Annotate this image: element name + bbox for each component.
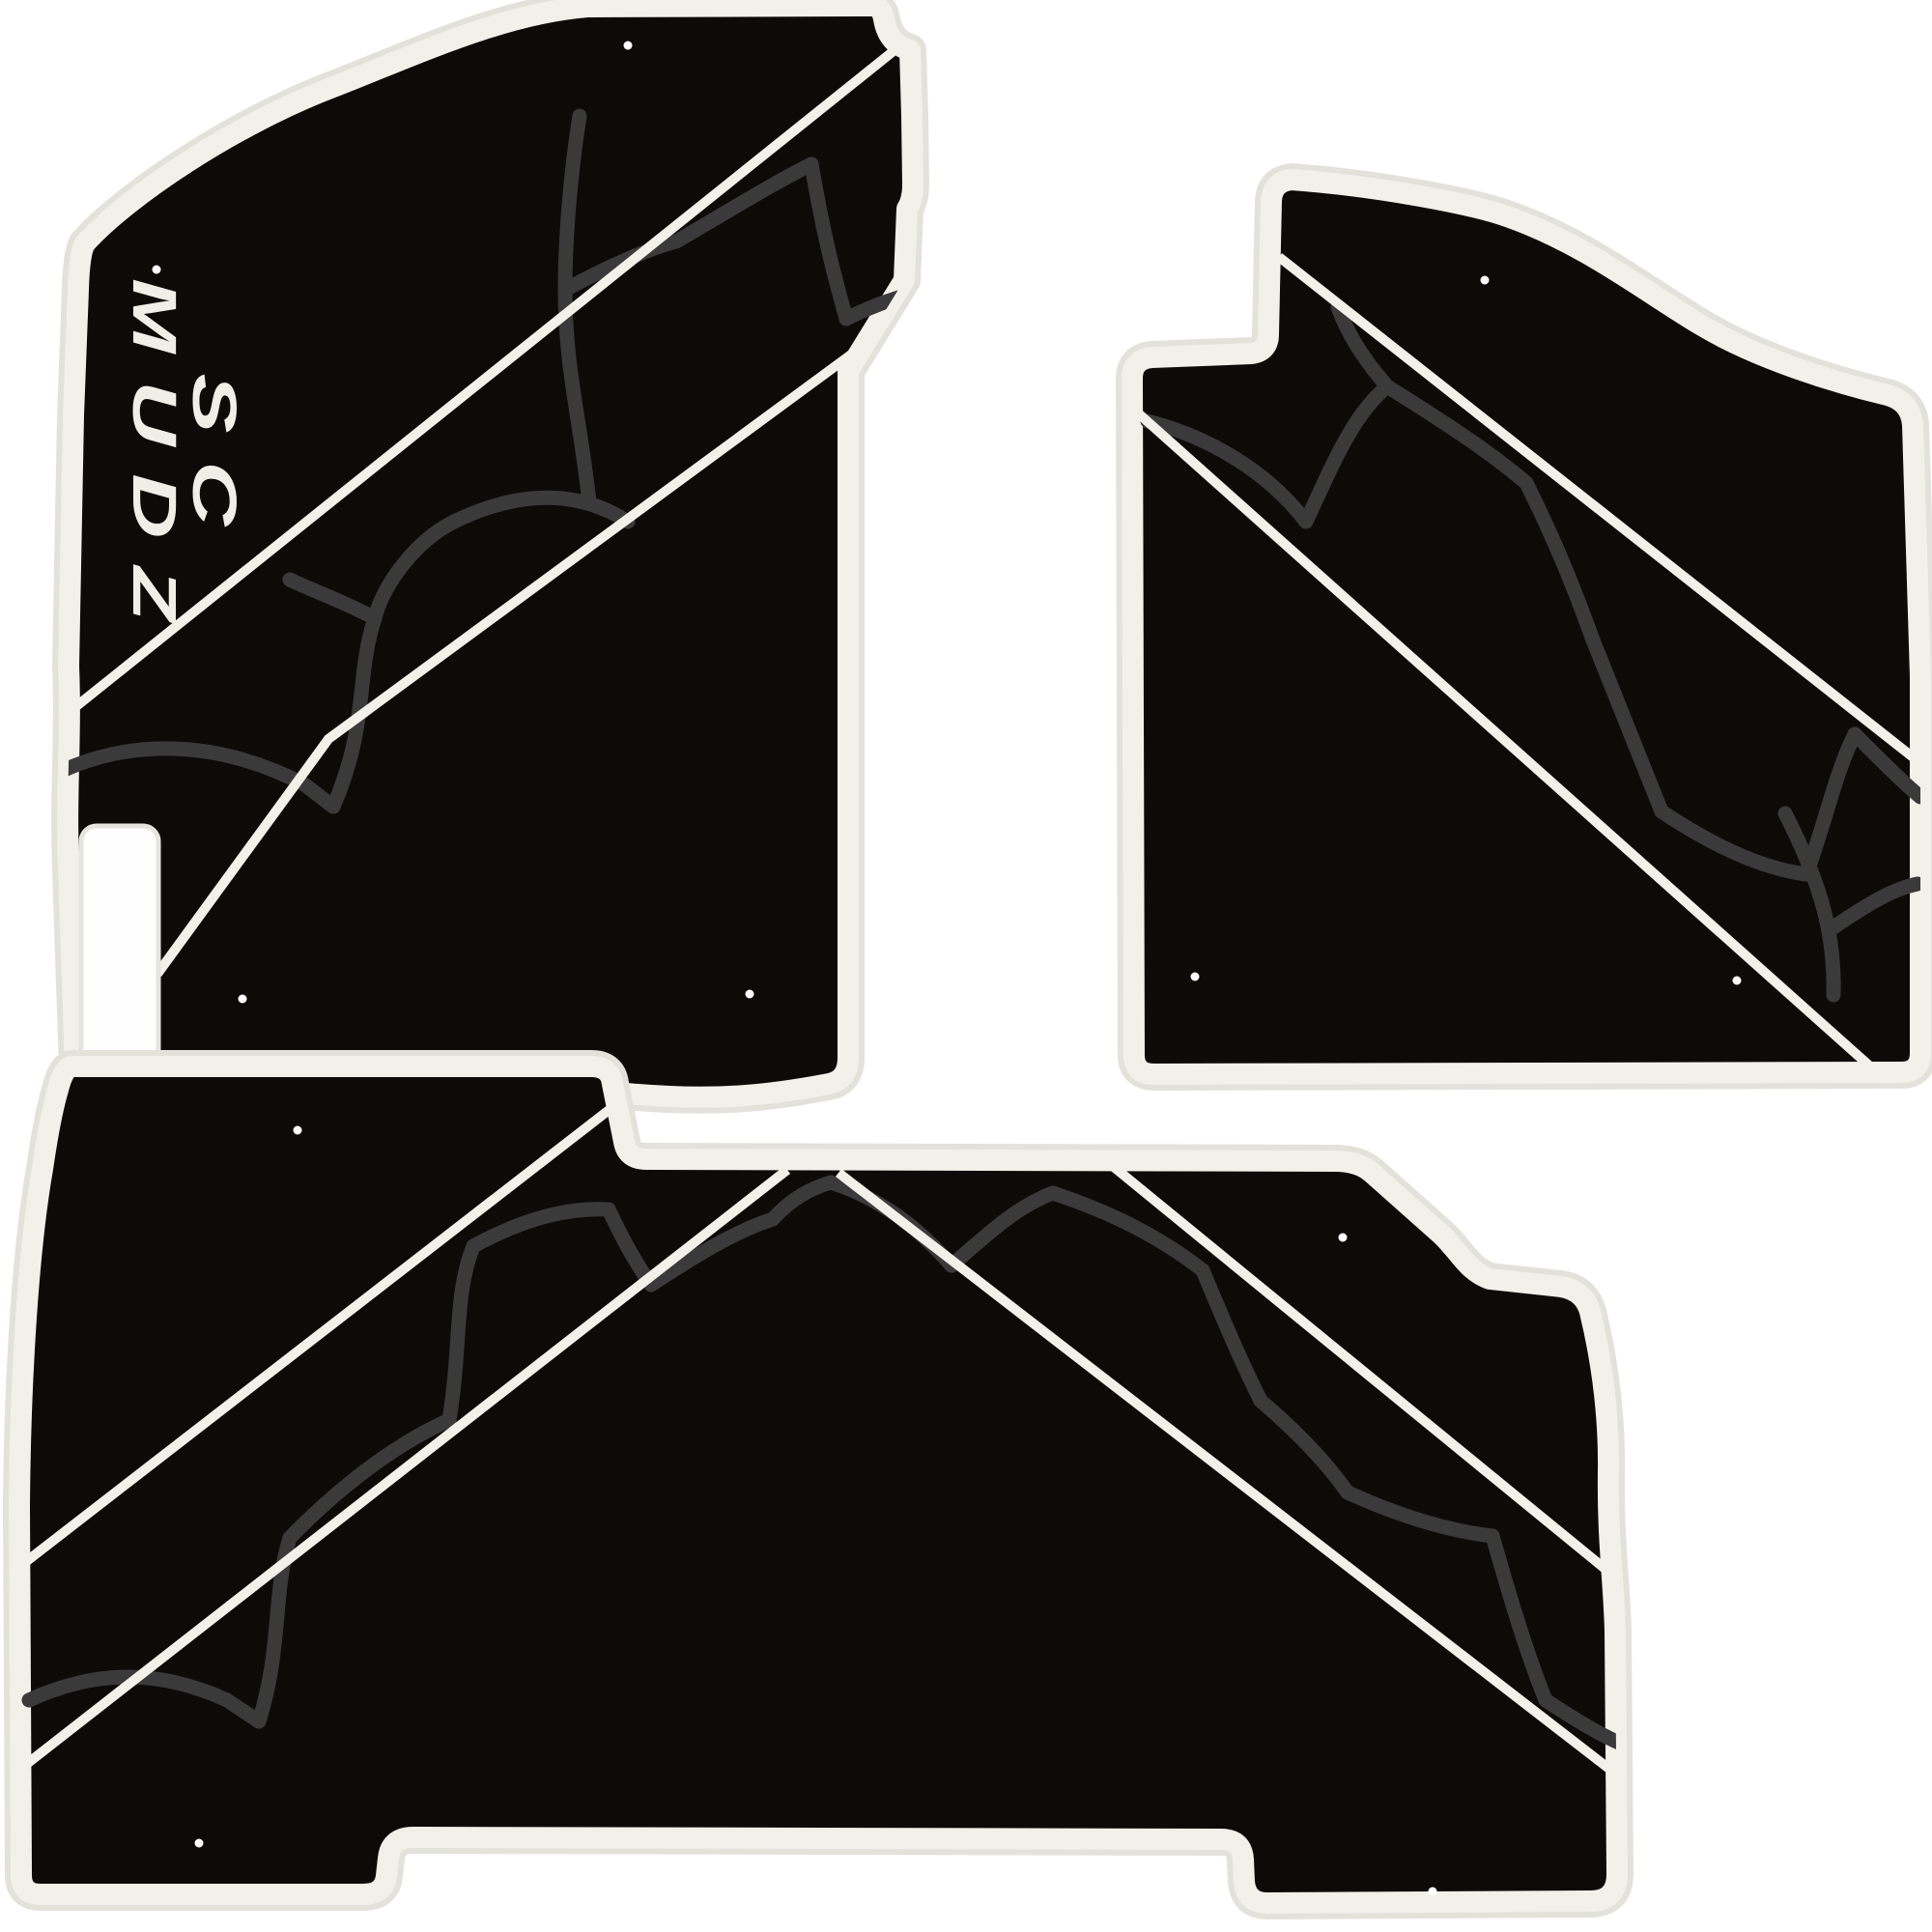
brand-logo-line1: SC [180, 374, 248, 554]
brand-logo-line2: MUDZ [120, 278, 188, 649]
front-driver-mat: SCMUDZ [58, 6, 913, 1097]
product-image: SCMUDZ [0, 0, 1932, 1932]
fastener-dot [624, 42, 633, 50]
heel-pad [81, 826, 158, 1075]
fastener-dot [1733, 977, 1742, 985]
front-passenger-mat-shape [1132, 180, 1920, 1074]
fastener-dot [1481, 276, 1490, 285]
fastener-dot [1191, 973, 1200, 981]
rear-mat [19, 1066, 1623, 1903]
product-canvas: SCMUDZ [0, 0, 1932, 1932]
fastener-dot [153, 266, 161, 274]
fastener-dot [746, 990, 754, 999]
front-passenger-mat [1132, 180, 1920, 1074]
fastener-dot [1429, 1888, 1437, 1896]
fastener-dot [294, 1126, 302, 1135]
fastener-dot [1339, 1234, 1348, 1242]
fastener-dot [239, 995, 247, 1004]
fastener-dot [195, 1839, 204, 1848]
